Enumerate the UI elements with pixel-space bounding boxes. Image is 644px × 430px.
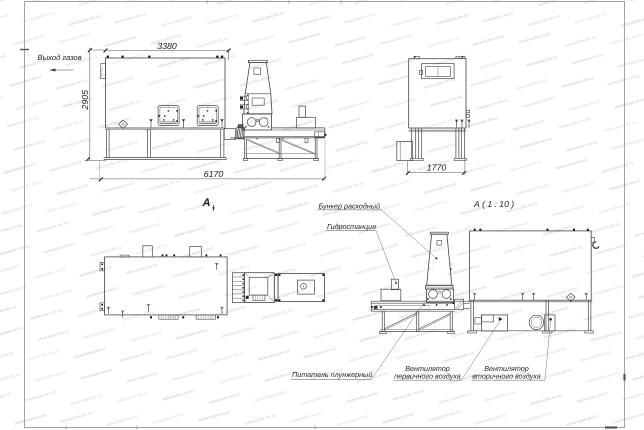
svg-text:А ( 1 : 10 ): А ( 1 : 10 ) bbox=[473, 199, 514, 209]
svg-text:первичного воздуха: первичного воздуха bbox=[394, 372, 461, 381]
svg-text:Бункер расходный: Бункер расходный bbox=[319, 201, 381, 210]
svg-text:Выход газов: Выход газов bbox=[38, 53, 82, 62]
svg-text:A: A bbox=[202, 197, 211, 209]
svg-text:3380: 3380 bbox=[157, 41, 177, 51]
svg-text:Гидростанция: Гидростанция bbox=[327, 222, 376, 231]
svg-text:2905: 2905 bbox=[80, 90, 90, 111]
svg-text:вторичного воздуха: вторичного воздуха bbox=[472, 372, 540, 381]
svg-text:Питатель плунжерный: Питатель плунжерный bbox=[292, 370, 372, 379]
svg-text:6170: 6170 bbox=[204, 169, 224, 179]
svg-text:1770: 1770 bbox=[427, 163, 447, 173]
